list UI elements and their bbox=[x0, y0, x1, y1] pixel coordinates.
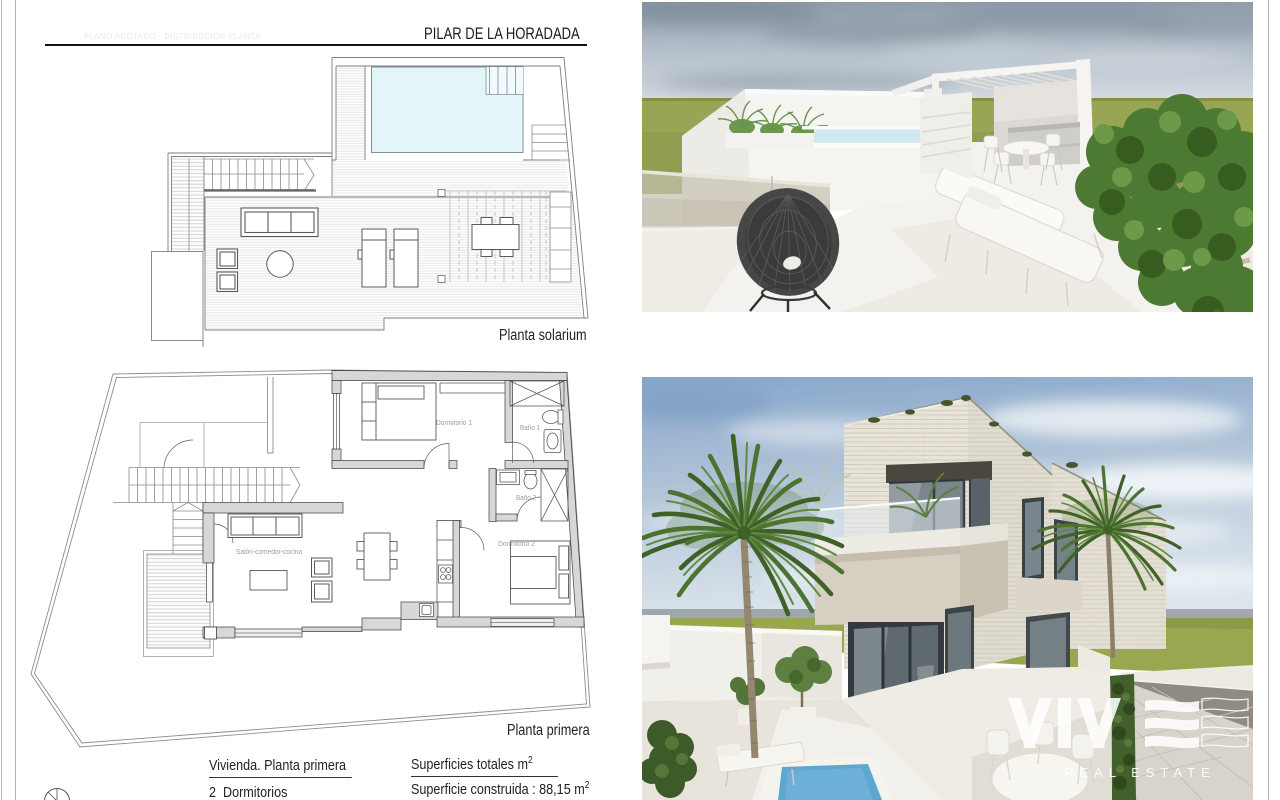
svg-text:Baño 1: Baño 1 bbox=[520, 425, 540, 432]
svg-text:REAL ESTATE: REAL ESTATE bbox=[1064, 765, 1216, 780]
svg-text:Dormitorio 1: Dormitorio 1 bbox=[436, 418, 472, 427]
svg-text:Baño 2: Baño 2 bbox=[516, 495, 536, 502]
svg-text:Salón-comedor-cocina: Salón-comedor-cocina bbox=[236, 547, 303, 556]
svg-text:Dormitorio 2: Dormitorio 2 bbox=[498, 539, 535, 548]
